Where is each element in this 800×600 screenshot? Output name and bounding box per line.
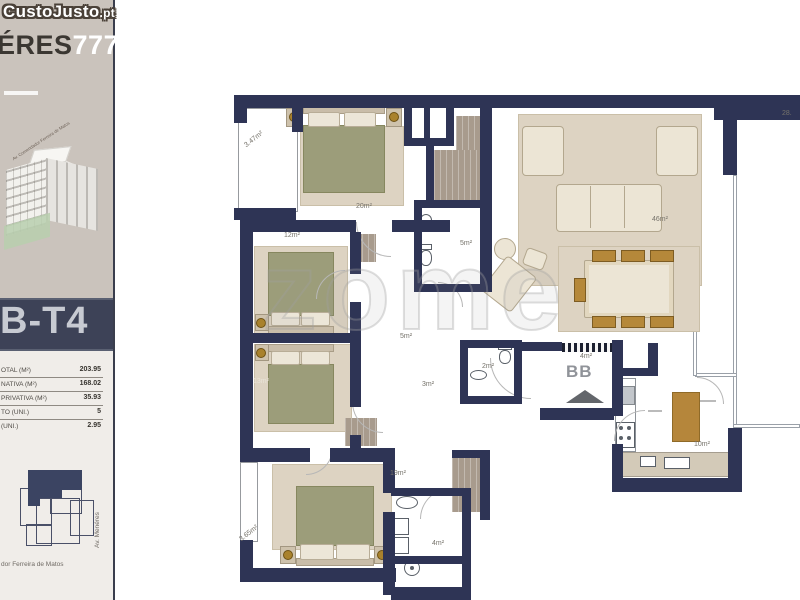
custojusto-logo: CustoJusto.pt <box>3 2 115 22</box>
sofa-cushion-line <box>624 186 625 228</box>
kitchen-sink <box>640 456 656 467</box>
wall-segment <box>350 302 361 333</box>
pillow <box>344 112 376 127</box>
section-marker-arrow-icon <box>566 390 604 403</box>
window-glass-line <box>733 424 800 428</box>
bed-third <box>268 364 334 424</box>
wall-segment <box>404 138 454 146</box>
wall-segment <box>350 232 361 274</box>
section-marker-bb: BB <box>566 362 593 382</box>
room-area-label: 46m² <box>652 216 668 223</box>
armchair <box>656 126 698 176</box>
room-area-label: 13m² <box>253 378 269 385</box>
listing-image: ÉRES777 Av. Comendador Ferreira de Matos… <box>0 0 800 600</box>
closet <box>434 150 480 202</box>
room-area-label: 12m² <box>284 232 300 239</box>
wall-segment <box>414 284 492 292</box>
pillow <box>300 544 334 560</box>
window-glass-line <box>733 175 737 428</box>
pillow <box>271 351 300 365</box>
lamp <box>256 318 266 328</box>
kitchen-note <box>648 410 662 412</box>
wall-segment <box>240 568 396 582</box>
wall-segment <box>620 368 658 376</box>
dining-chair <box>574 278 586 302</box>
wall-segment <box>240 448 310 462</box>
logo-tld: .pt <box>100 6 116 20</box>
wall-segment <box>460 396 522 404</box>
bath-shelf <box>394 537 409 554</box>
wall-segment <box>460 340 468 404</box>
wall-segment <box>462 488 471 595</box>
dining-chair <box>592 250 616 262</box>
wall-segment <box>723 95 737 175</box>
pillow <box>301 312 330 326</box>
bed-master <box>303 125 385 193</box>
wall-segment <box>391 488 471 496</box>
pillow <box>271 312 300 326</box>
wall-segment <box>414 200 422 292</box>
wall-segment <box>460 340 522 348</box>
wall-segment <box>480 450 490 520</box>
dining-chair <box>592 316 616 328</box>
wall-segment <box>240 333 352 343</box>
room-area-label: 19m² <box>390 470 406 477</box>
door-arc <box>697 377 724 404</box>
wall-segment <box>414 200 488 208</box>
sofa <box>556 184 662 232</box>
room-area-label: 5m² <box>460 240 472 247</box>
sofa-cushion-line <box>590 186 591 228</box>
closet <box>456 116 480 150</box>
wall-segment <box>383 512 395 595</box>
pillow <box>301 351 330 365</box>
bed-fourth <box>296 486 374 546</box>
wall-segment <box>612 340 623 416</box>
lamp <box>389 112 399 122</box>
dining-chair <box>621 316 645 328</box>
counter-appliance <box>664 457 690 469</box>
floor-plan: BB zome 3.47m²20m²12m²5m²46m²28.5m²3m²2m… <box>0 0 800 600</box>
door-arc <box>490 358 531 399</box>
wall-segment <box>350 333 361 407</box>
room-area-label: 10m² <box>694 441 710 448</box>
room-area-label: 4m² <box>580 353 592 360</box>
pillow <box>308 112 340 127</box>
wall-segment <box>514 340 522 404</box>
lamp <box>283 550 293 560</box>
dining-table <box>584 260 674 318</box>
wall-segment <box>391 556 471 564</box>
wall-segment <box>391 587 471 600</box>
room-area-label: 28. <box>782 110 792 117</box>
wall-segment <box>522 342 562 351</box>
wall-segment <box>292 106 303 132</box>
armchair <box>522 126 564 176</box>
room-area-label: 4m² <box>432 540 444 547</box>
wall-segment <box>240 220 356 232</box>
wall-segment <box>612 478 742 492</box>
pillow <box>336 544 370 560</box>
dining-chair <box>621 250 645 262</box>
sink <box>470 370 487 380</box>
room-area-label: 5m² <box>400 333 412 340</box>
room-area-label: 20m² <box>356 203 372 210</box>
kitchen-island <box>672 392 700 442</box>
room-area-label: 2m² <box>482 363 494 370</box>
wall-segment <box>540 408 614 420</box>
bath-shelf <box>394 518 409 535</box>
toilet-drain <box>410 566 414 570</box>
logo-text: CustoJusto <box>3 2 100 21</box>
window-glass-line <box>693 330 697 376</box>
storage-hatch <box>562 343 612 352</box>
wall-segment <box>612 444 623 480</box>
wall-segment <box>234 95 247 123</box>
room-area-label: 3m² <box>422 381 434 388</box>
lamp <box>256 348 266 358</box>
wall-segment <box>426 146 434 208</box>
dining-chair <box>650 316 674 328</box>
sink <box>396 496 418 509</box>
dining-chair <box>650 250 674 262</box>
